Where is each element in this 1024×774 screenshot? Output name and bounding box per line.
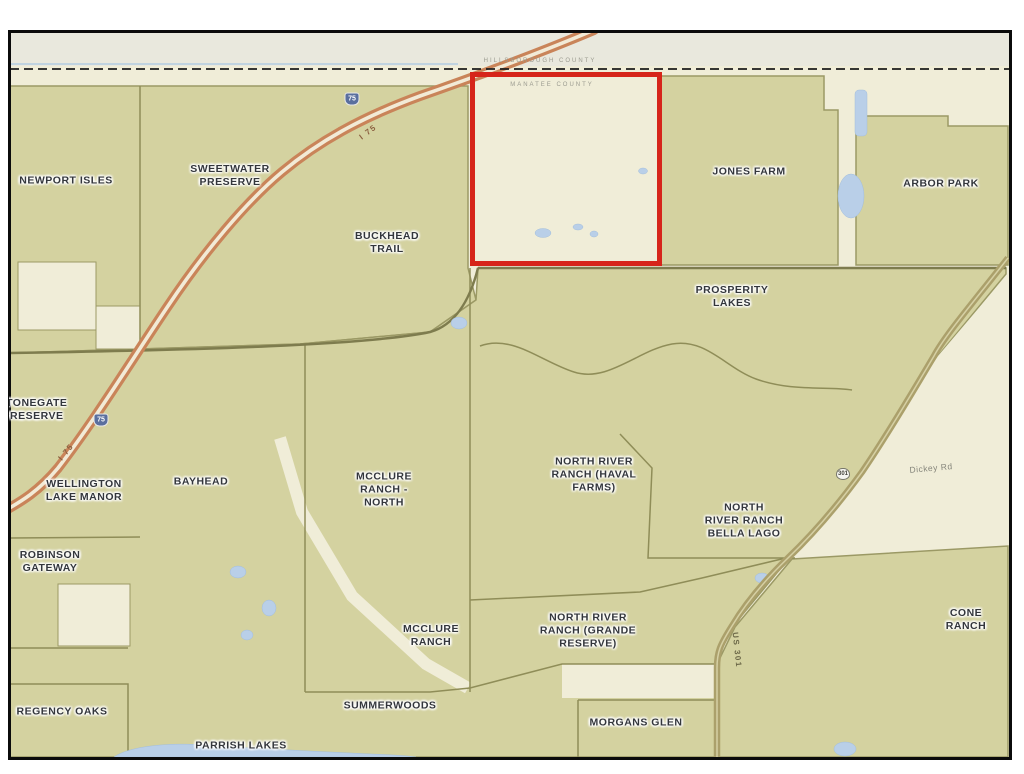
cutout-4 [58, 584, 130, 646]
subject-parcel-highlight [470, 72, 662, 266]
parcel-jones-farm [660, 76, 838, 265]
map-screenshot: NEWPORT ISLES SWEETWATER PRESERVE BUCKHE… [0, 0, 1024, 774]
cutout-1 [18, 262, 96, 330]
cutout-2 [96, 306, 140, 349]
parcel-arbor-park [856, 116, 1008, 265]
cutout-3 [562, 664, 716, 698]
